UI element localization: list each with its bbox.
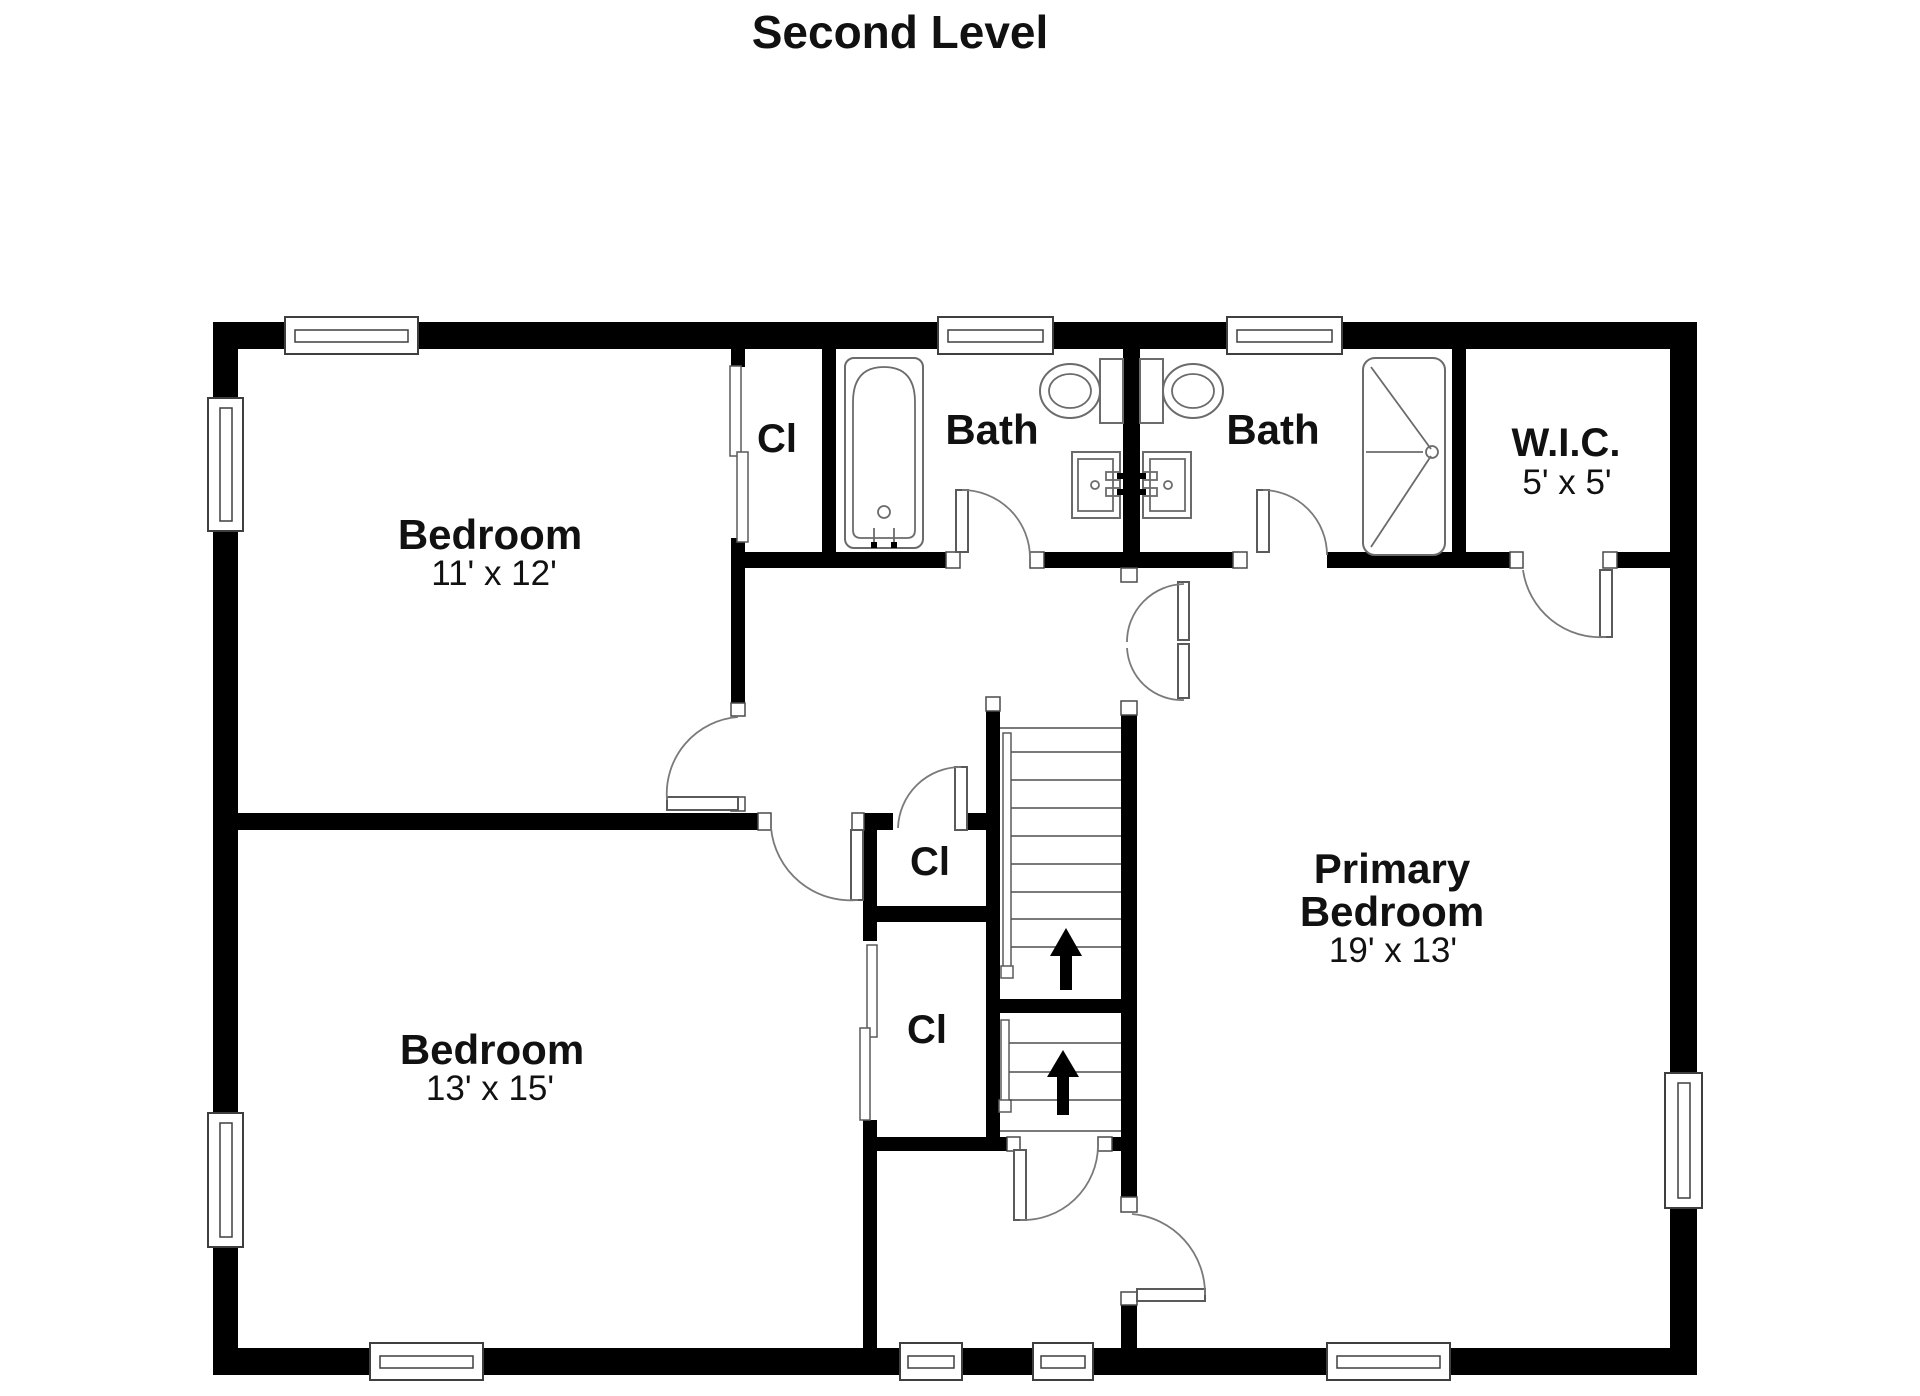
room-label-wic: W.I.C. xyxy=(1512,421,1621,465)
shower-icon xyxy=(1363,358,1445,555)
windows xyxy=(208,317,1702,1380)
room-dims-primary: 19' x 13' xyxy=(1329,931,1457,970)
vanity-sink-icon xyxy=(1072,452,1123,518)
door-stairs-landing xyxy=(1014,1146,1098,1220)
door-bedroom-top xyxy=(667,717,738,810)
room-label-bath-left: Bath xyxy=(945,406,1038,453)
up-arrow-icon xyxy=(1047,1050,1079,1115)
floor-plan-canvas: Second Level Bedroom 11' x 12' Cl Bath B… xyxy=(0,0,1920,1396)
door-bath-left xyxy=(956,490,1030,558)
room-label-closet-top: Cl xyxy=(757,417,797,461)
toilet-icon xyxy=(1040,359,1123,423)
window-left-1 xyxy=(208,398,243,531)
room-label-primary-line2: Bedroom xyxy=(1300,888,1484,935)
window-bottom-1 xyxy=(370,1343,483,1380)
room-dims-bedroom-bottom: 13' x 15' xyxy=(426,1069,554,1108)
room-dims-bedroom-top: 11' x 12' xyxy=(431,554,557,593)
window-top-3 xyxy=(1227,317,1342,354)
bathtub-icon xyxy=(845,358,923,548)
door-bedroom-bottom xyxy=(771,828,863,900)
door-closet-mid xyxy=(898,767,967,830)
door-bath-right xyxy=(1257,490,1327,555)
toilet-icon xyxy=(1140,359,1223,423)
window-bottom-4 xyxy=(1327,1343,1450,1380)
door-primary-entry xyxy=(1132,1214,1205,1301)
room-label-closet-bottom: Cl xyxy=(907,1008,947,1052)
room-label-bath-right: Bath xyxy=(1226,406,1319,453)
outer-walls xyxy=(213,322,1697,1375)
up-arrow-icon xyxy=(1050,928,1082,990)
floor-plan-page: Second Level Bedroom 11' x 12' Cl Bath B… xyxy=(0,0,1920,1396)
room-label-primary-line1: Primary xyxy=(1314,845,1471,892)
window-top-1 xyxy=(285,317,418,354)
window-right-1 xyxy=(1665,1073,1702,1208)
door-wic xyxy=(1523,570,1612,637)
room-label-bedroom-top: Bedroom xyxy=(398,511,582,558)
window-bottom-3 xyxy=(1033,1343,1093,1380)
window-top-2 xyxy=(938,317,1053,354)
room-label-bedroom-bottom: Bedroom xyxy=(400,1026,584,1073)
window-left-2 xyxy=(208,1113,243,1247)
stairs-upper-flight xyxy=(1000,728,1121,990)
vanity-sink-icon xyxy=(1140,452,1191,518)
floor-plan-title: Second Level xyxy=(752,6,1049,58)
room-label-closet-mid: Cl xyxy=(910,840,950,884)
window-bottom-2 xyxy=(900,1343,962,1380)
double-doors-hall-primary xyxy=(1127,582,1189,700)
stairs-lower-flight xyxy=(999,1020,1121,1131)
room-dims-wic: 5' x 5' xyxy=(1522,463,1611,502)
